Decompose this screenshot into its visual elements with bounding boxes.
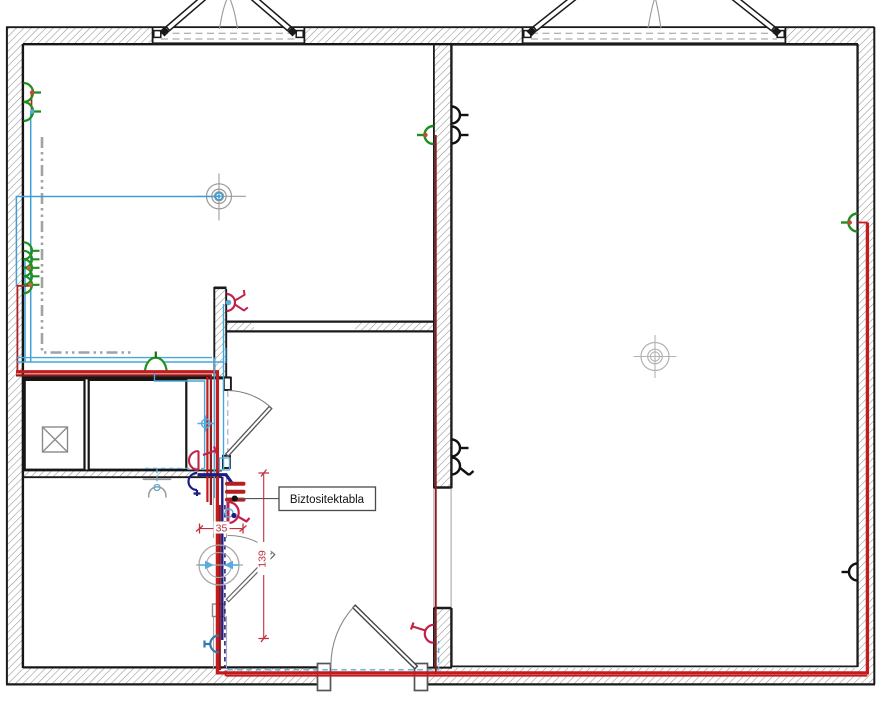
svg-text:Biztositektabla: Biztositektabla [290,494,365,506]
svg-text:139: 139 [257,550,269,568]
svg-text:35: 35 [216,523,228,535]
